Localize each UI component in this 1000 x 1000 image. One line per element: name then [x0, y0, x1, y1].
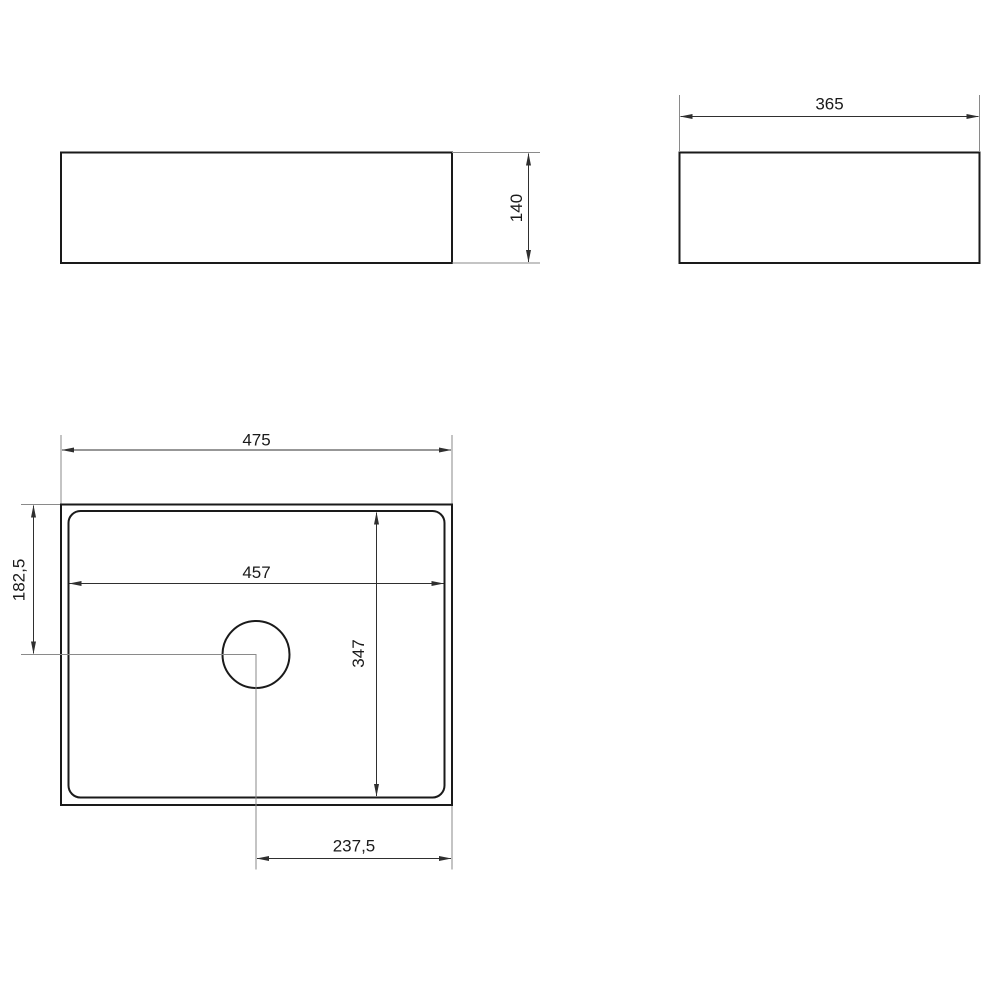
plan-width-dimension: 475 [61, 431, 452, 504]
basin-depth-dimension-label: 347 [349, 639, 368, 667]
plan-view: 475 182,5 457 347 237,5 [10, 431, 453, 870]
front-view-outline [61, 153, 452, 264]
hole-offset-x-dimension: 237,5 [257, 806, 452, 870]
dimension-drawing-svg: 140 365 475 182,5 457 [0, 0, 1000, 1000]
hole-offset-y-dimension: 182,5 [10, 505, 61, 654]
side-width-dimension-label: 365 [815, 95, 843, 114]
basin-width-dimension: 457 [70, 563, 444, 584]
side-view: 365 [680, 95, 980, 264]
hole-offset-x-dimension-label: 237,5 [333, 837, 376, 856]
hole-offset-y-dimension-label: 182,5 [10, 559, 29, 602]
plan-width-dimension-label: 475 [242, 431, 270, 450]
basin-width-dimension-label: 457 [242, 563, 270, 582]
front-height-dimension: 140 [452, 153, 540, 264]
technical-drawing-canvas: 140 365 475 182,5 457 [0, 0, 1000, 1000]
front-height-dimension-label: 140 [507, 194, 526, 222]
front-view: 140 [61, 153, 540, 264]
side-view-outline [680, 153, 980, 264]
basin-depth-dimension: 347 [349, 513, 377, 797]
drain-hole-centerlines [21, 655, 256, 870]
side-width-dimension: 365 [680, 95, 980, 153]
